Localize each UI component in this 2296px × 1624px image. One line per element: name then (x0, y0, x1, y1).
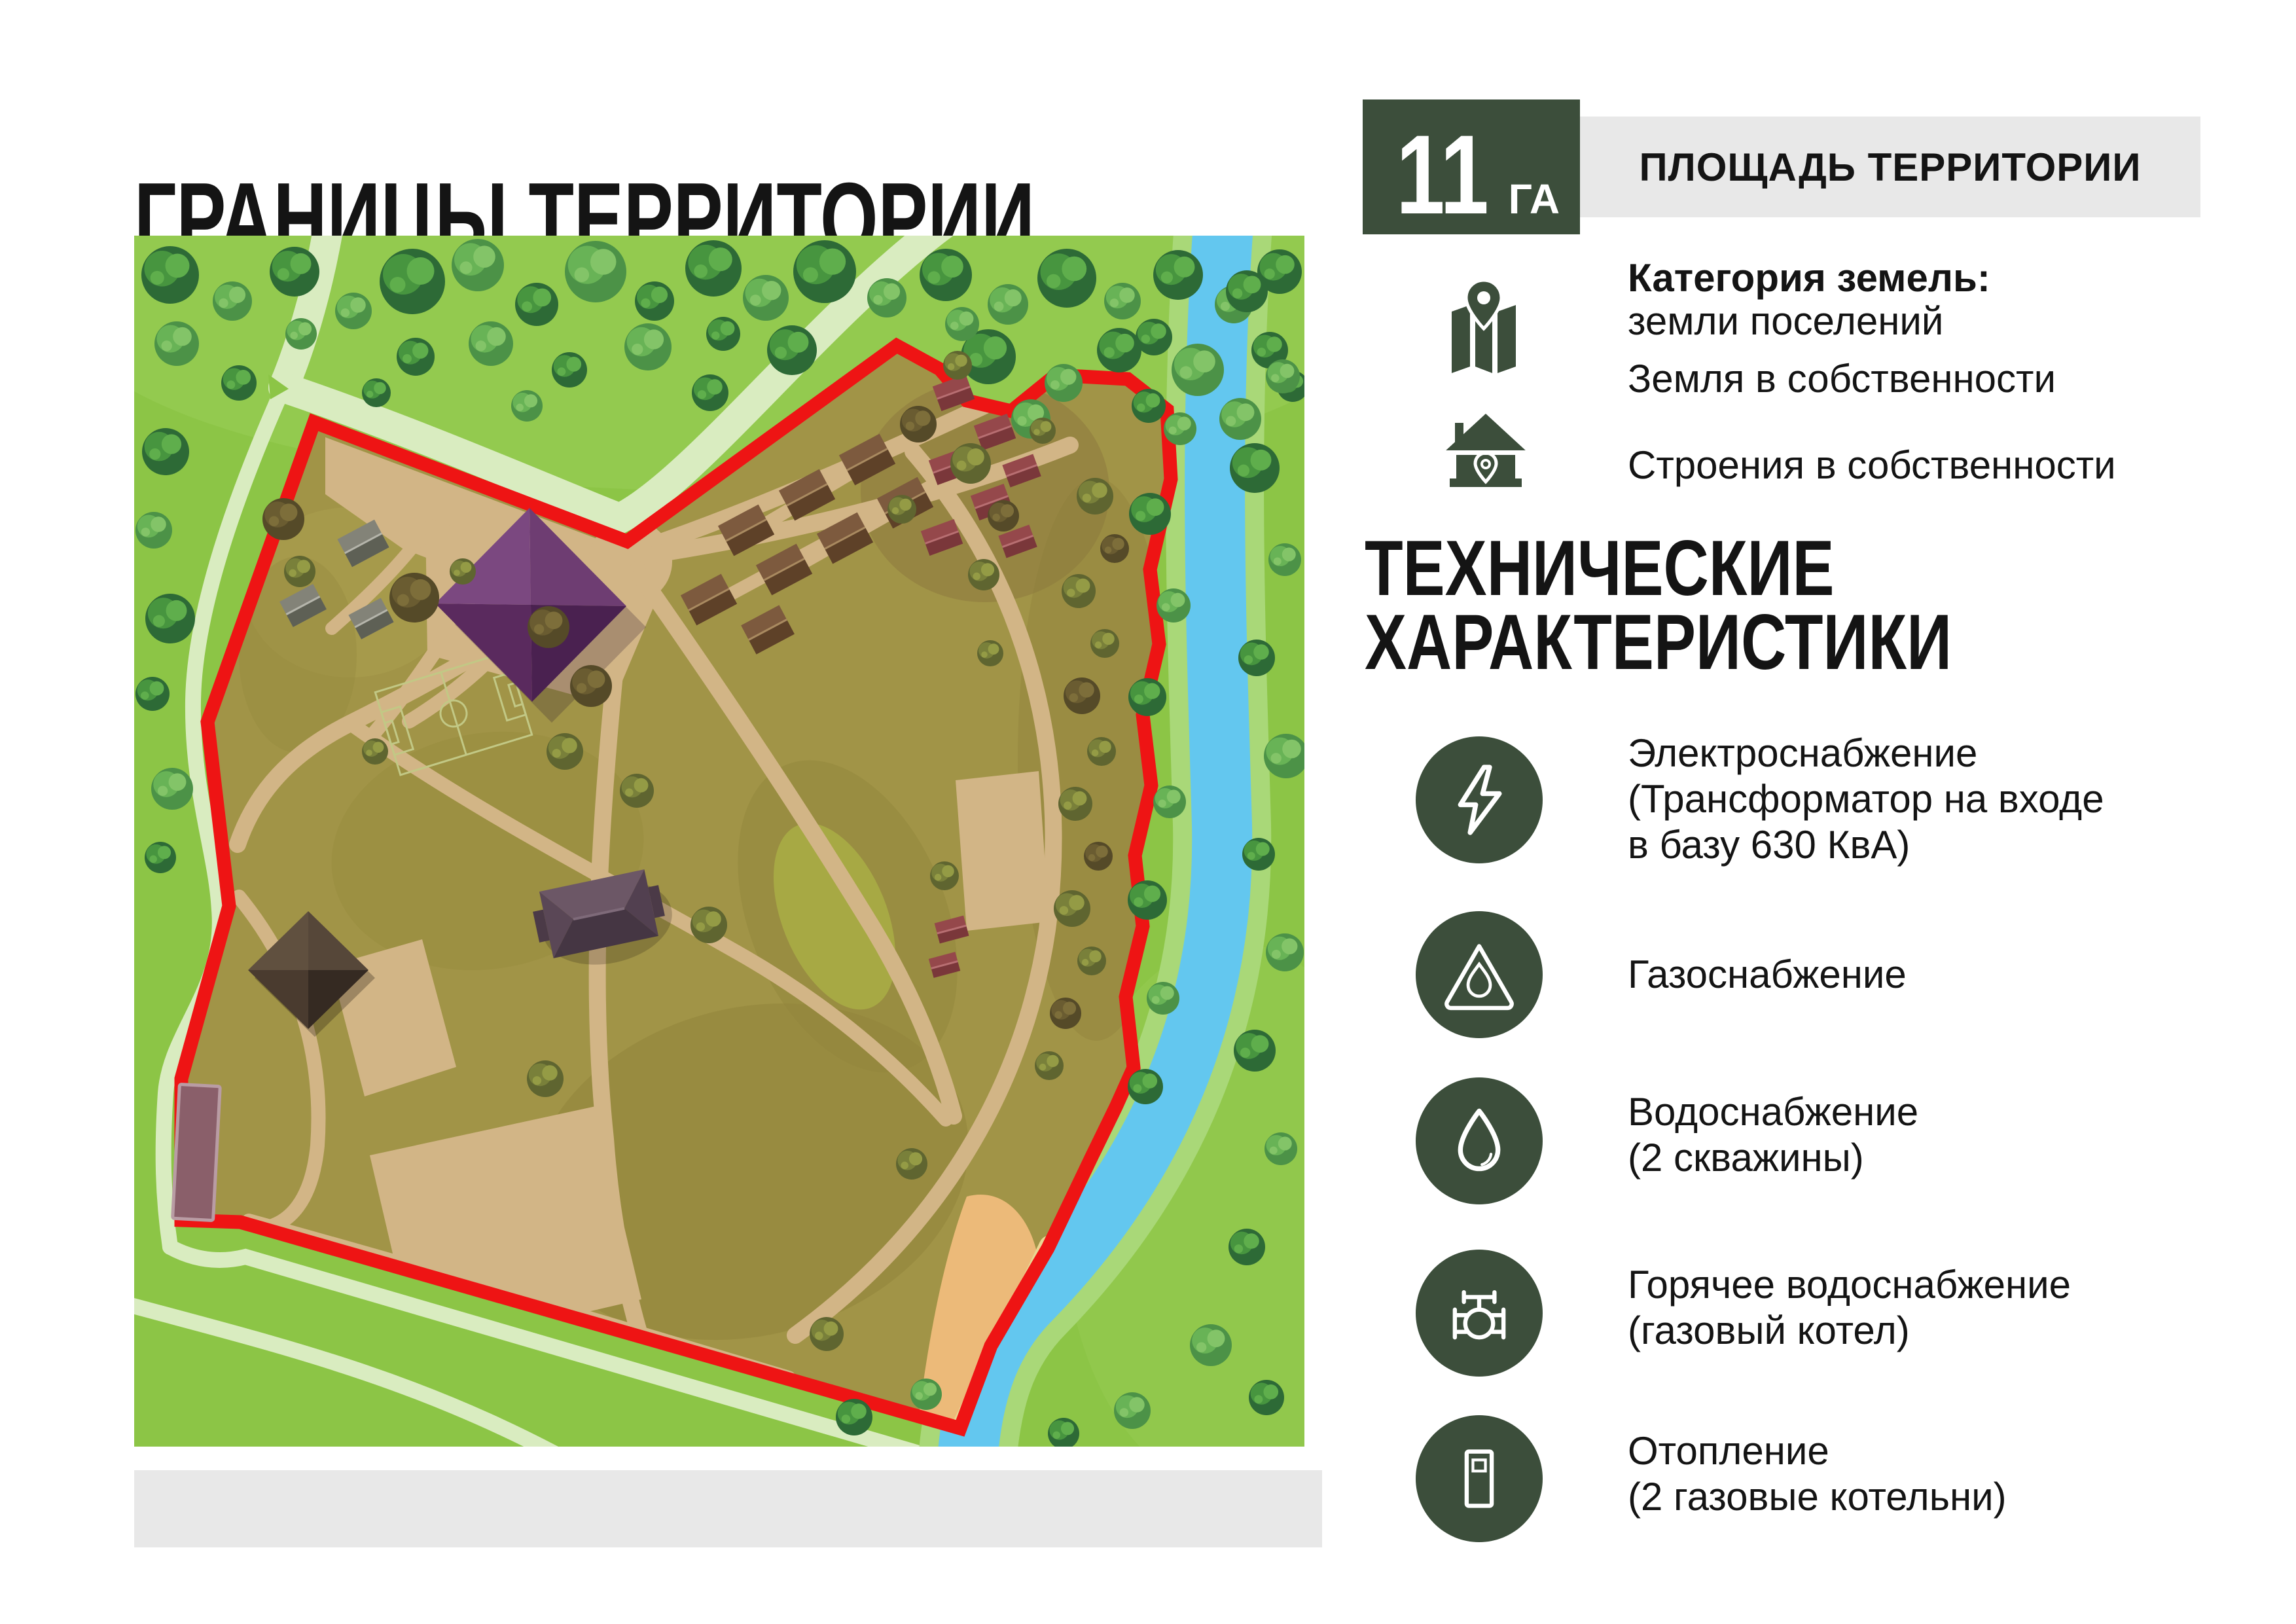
house-location-icon (1443, 412, 1529, 490)
gas-badge (1416, 911, 1543, 1038)
territory-map (134, 236, 1304, 1447)
area-label: ПЛОЩАДЬ ТЕРРИТОРИИ (1639, 145, 2141, 190)
electricity-text: Электроснабжение (Трансформатор на входе… (1628, 731, 2104, 868)
valve-icon (1434, 1268, 1524, 1358)
boiler-icon (1434, 1434, 1524, 1524)
long-building (173, 1085, 221, 1221)
lightning-icon (1434, 755, 1524, 845)
area-badge: 11 ГА (1363, 99, 1580, 234)
hot-water-text: Горячее водоснабжение (газовый котел) (1628, 1262, 2071, 1354)
hot-water-badge (1416, 1250, 1543, 1377)
water-drop-icon (1434, 1096, 1524, 1186)
gas-text: Газоснабжение (1628, 952, 1907, 998)
tech-heading: ТЕХНИЧЕСКИЕ ХАРАКТЕРИСТИКИ (1365, 532, 2098, 679)
gas-flame-icon (1434, 929, 1524, 1020)
area-unit: ГА (1509, 181, 1560, 219)
heating-badge (1416, 1415, 1543, 1542)
land-category-block: Категория земель: земли поселений (1628, 257, 1990, 343)
water-badge (1416, 1077, 1543, 1204)
land-ownership-text: Земля в собственности (1628, 356, 2056, 401)
map-location-icon (1448, 278, 1520, 376)
water-text: Водоснабжение (2 скважины) (1628, 1089, 1918, 1181)
area-label-bar: ПЛОЩАДЬ ТЕРРИТОРИИ (1580, 117, 2200, 217)
heating-text: Отопление (2 газовые котельни) (1628, 1428, 2007, 1520)
electricity-badge (1416, 736, 1543, 863)
buildings-ownership-text: Строения в собственности (1628, 442, 2116, 488)
map-footer-bar (134, 1470, 1322, 1547)
land-category-value: земли поселений (1628, 300, 1990, 343)
area-value: 11 (1396, 131, 1489, 219)
land-category-label: Категория земель: (1628, 257, 1990, 300)
